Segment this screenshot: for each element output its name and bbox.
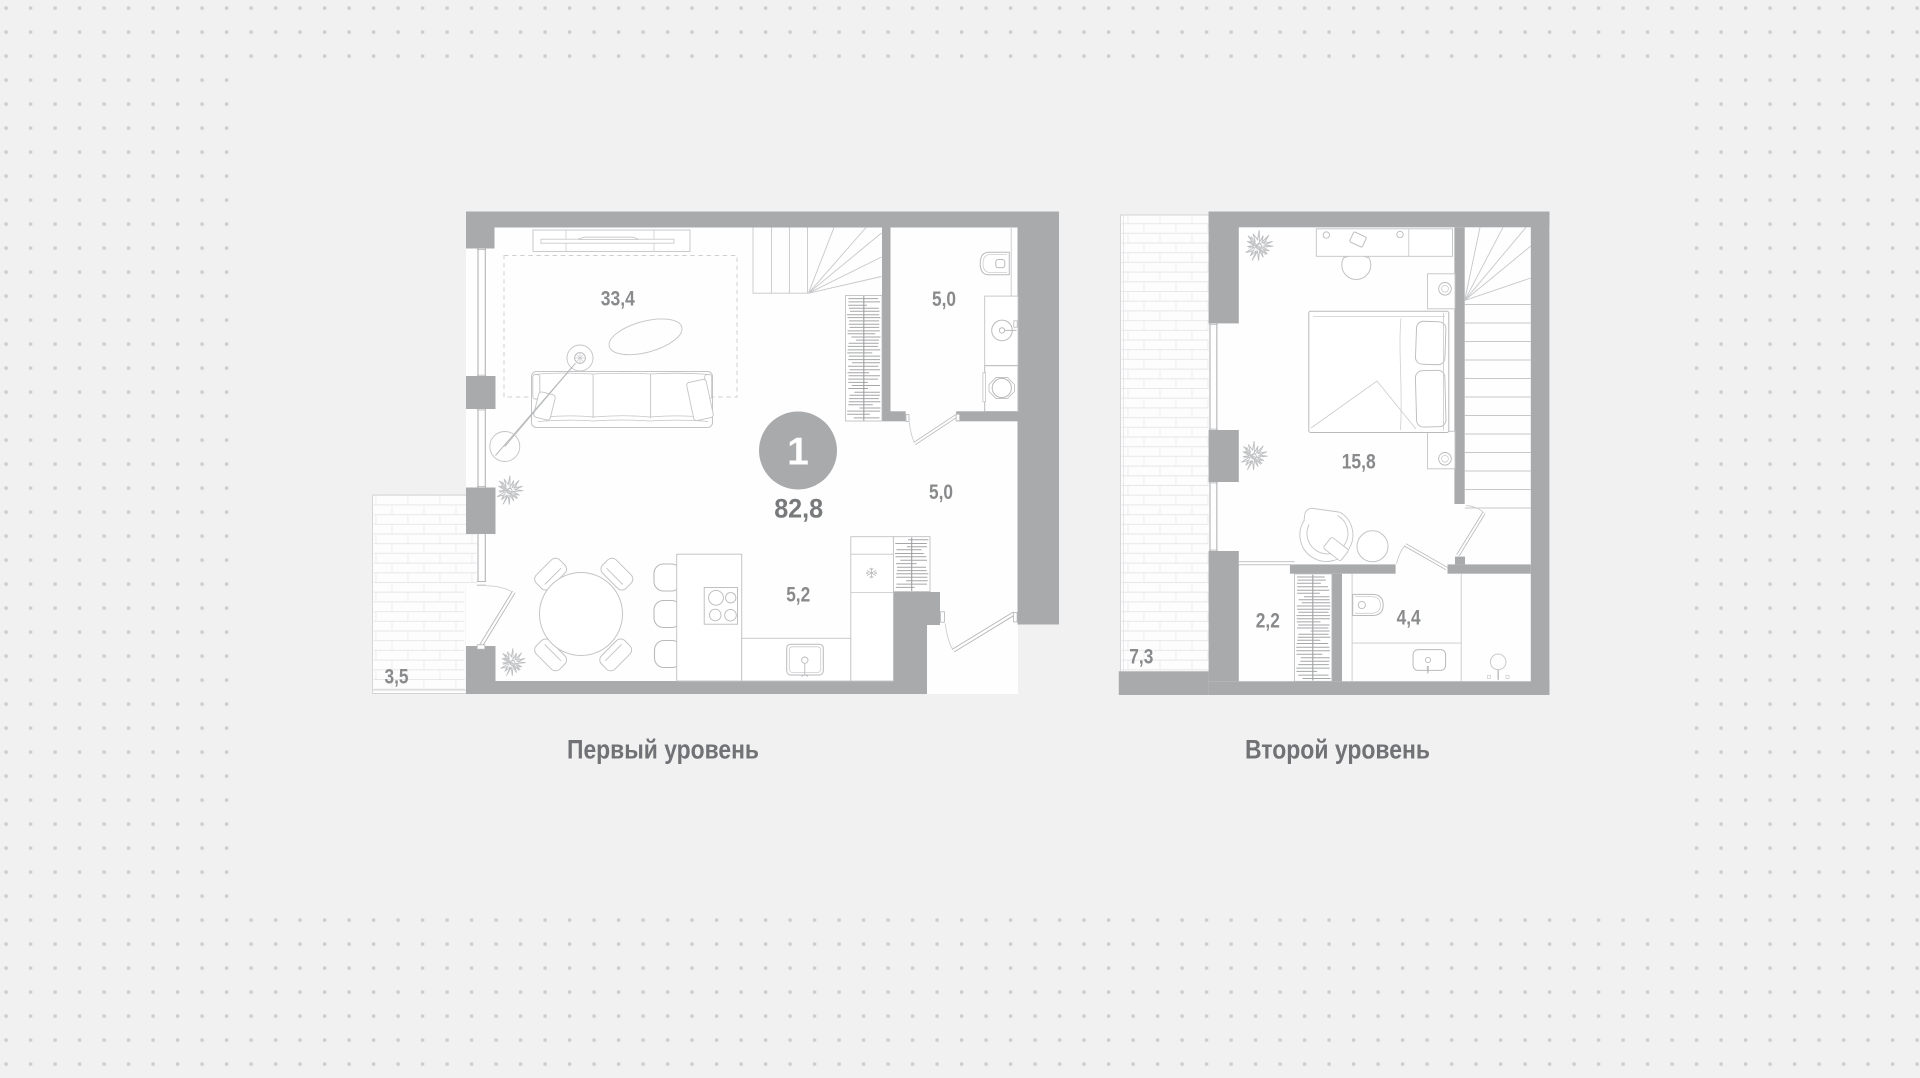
svg-text:2,2: 2,2 <box>1256 610 1280 633</box>
svg-text:3,5: 3,5 <box>385 665 409 688</box>
svg-text:5,2: 5,2 <box>786 584 810 607</box>
svg-text:15,8: 15,8 <box>1342 450 1376 473</box>
svg-text:7,3: 7,3 <box>1129 645 1153 668</box>
svg-text:Второй уровень: Второй уровень <box>1245 735 1430 765</box>
svg-text:4,4: 4,4 <box>1397 607 1421 630</box>
svg-text:5,0: 5,0 <box>929 481 953 504</box>
svg-text:33,4: 33,4 <box>601 288 635 311</box>
svg-text:5,0: 5,0 <box>932 288 956 311</box>
svg-text:Первый уровень: Первый уровень <box>567 735 759 765</box>
svg-text:1: 1 <box>787 431 809 474</box>
svg-text:82,8: 82,8 <box>774 494 823 524</box>
